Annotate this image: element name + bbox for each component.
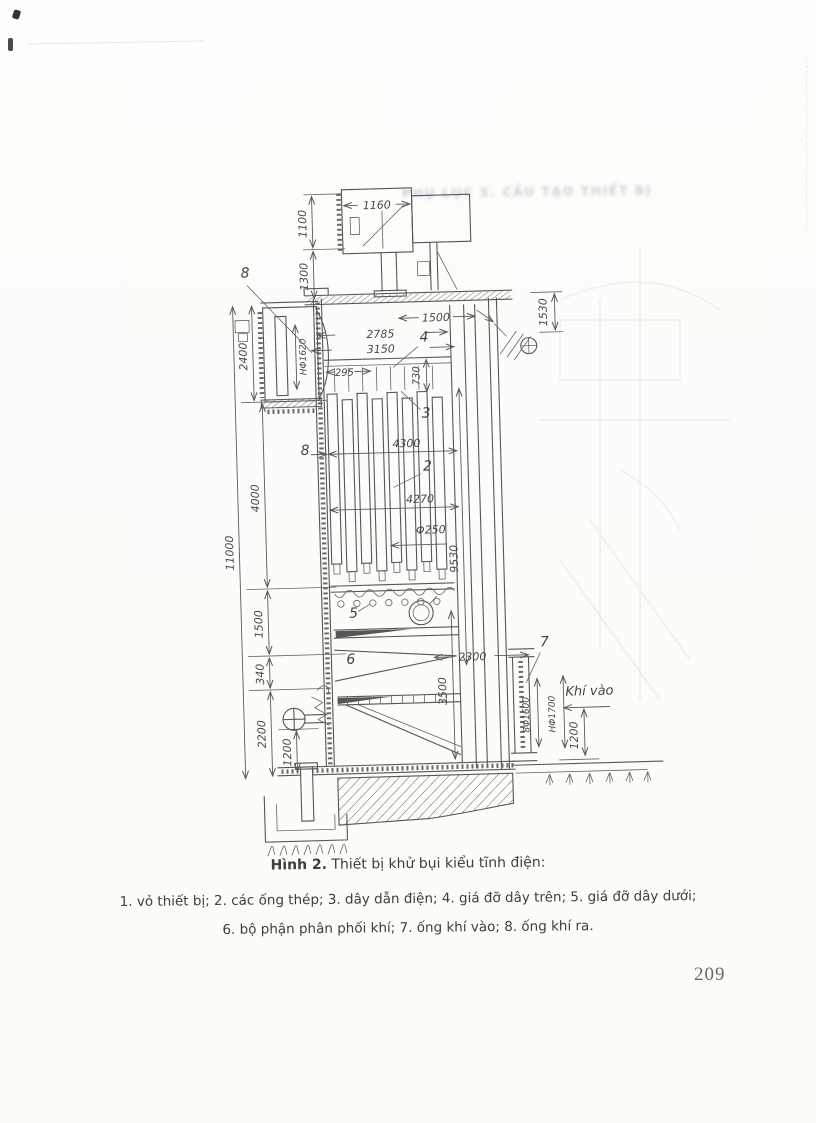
manhole <box>409 600 434 625</box>
label-8-top: 8 <box>240 265 249 281</box>
soil-marks-left <box>268 844 347 856</box>
soil-marks-right <box>546 771 651 785</box>
air-inlet-arrow <box>564 707 610 708</box>
label-6: 6 <box>346 652 355 668</box>
label-3: 3 <box>421 405 430 421</box>
air-inlet-label: Khí vào <box>565 683 614 699</box>
figure-caption-number: Hình 2. <box>271 857 328 874</box>
top-dimensions: 1160 1100 1300 <box>295 192 412 299</box>
dim-2400: 2400 <box>237 342 251 370</box>
dim-8-phi-1600: 8Φ1600 <box>522 697 533 733</box>
dim-2785: 2785 <box>366 327 394 341</box>
dim-1530: 1530 <box>536 298 550 326</box>
dim-h-phi-1700: HΦ1700 <box>548 695 559 732</box>
dim-h-phi-1620: HΦ1620 <box>298 338 309 375</box>
dim-1500: 1500 <box>422 311 450 325</box>
dim-1500-left: 1500 <box>252 610 266 638</box>
scanned-page: PHỤ LỤC 5. CẤU TẠO THIẾT BỊ <box>0 0 816 1123</box>
precipitator-diagram: 1160 1100 1300 <box>213 181 665 857</box>
dim-11000: 11000 <box>223 535 237 570</box>
dim-1300: 1300 <box>297 263 311 291</box>
dim-1200-left: 1200 <box>281 738 295 766</box>
label-7: 7 <box>540 634 549 650</box>
dim-1100: 1100 <box>296 210 310 238</box>
dim-phi-250: Φ250 <box>416 523 446 537</box>
dim-4270: 4270 <box>406 492 434 506</box>
dim-295: 295 <box>335 368 354 380</box>
dim-2300: 2300 <box>458 650 486 664</box>
figure-drawing: 1160 1100 1300 <box>0 0 816 1123</box>
dim-340: 340 <box>254 664 268 685</box>
dim-3500: 3500 <box>436 677 450 705</box>
foundation <box>263 753 665 856</box>
label-5: 5 <box>349 605 358 621</box>
transformer-unit <box>338 186 472 298</box>
dim-3150: 3150 <box>367 342 395 356</box>
label-8-mid: 8 <box>300 443 309 459</box>
tube-bundle <box>324 357 458 627</box>
bleedthrough-drawing <box>540 250 730 700</box>
dim-9530: 9530 <box>447 545 461 573</box>
dim-4300: 4300 <box>392 437 420 451</box>
figure-caption-title: Thiết bị khử bụi kiểu tĩnh điện: <box>327 855 546 873</box>
label-2: 2 <box>423 458 432 474</box>
nozzle-detail <box>477 308 537 361</box>
dim-1160: 1160 <box>363 198 391 212</box>
dim-4000: 4000 <box>249 484 263 512</box>
dim-1200-right: 1200 <box>567 721 581 749</box>
dim-2200: 2200 <box>255 720 269 748</box>
label-4: 4 <box>419 329 428 345</box>
dust-valve <box>282 686 330 731</box>
dim-730: 730 <box>411 366 423 385</box>
page-number: 209 <box>694 964 726 986</box>
